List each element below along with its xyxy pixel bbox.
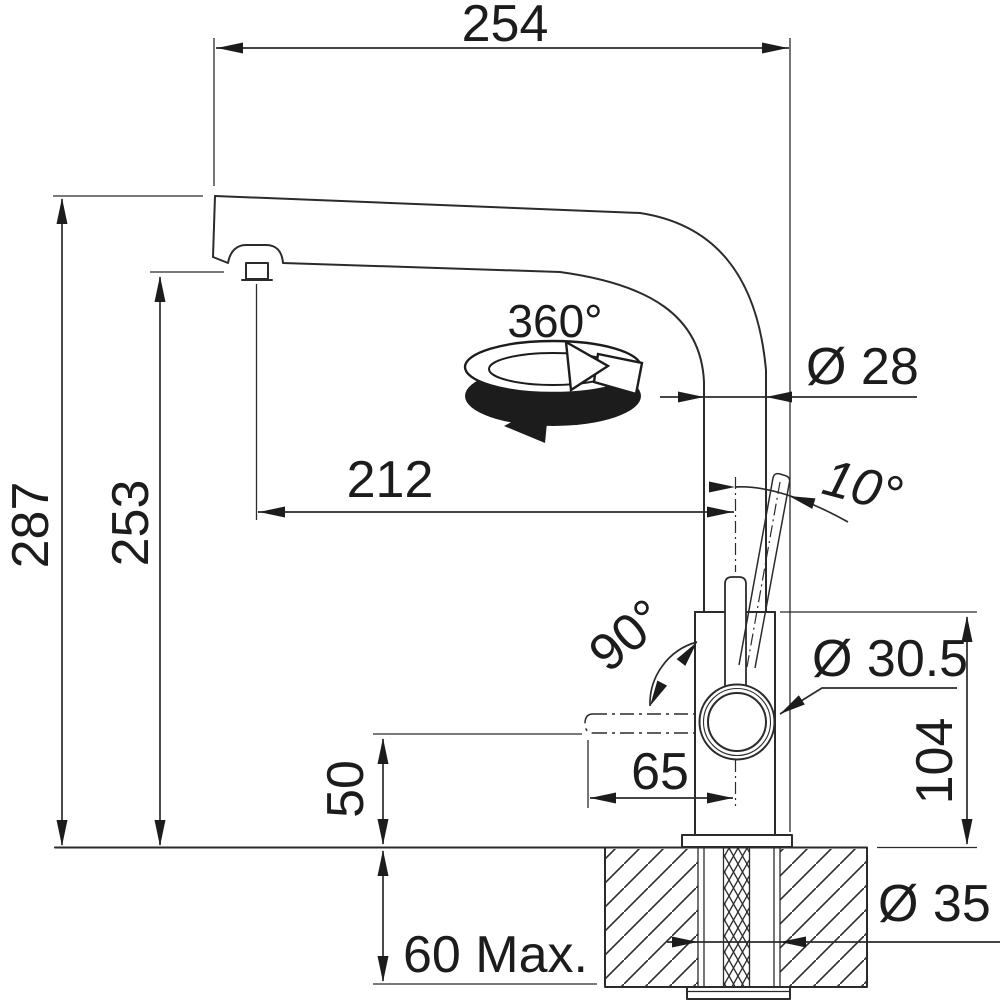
side-outlet-phantom (585, 714, 700, 733)
label-outlet-height: 50 (317, 760, 375, 818)
label-pipe-diameter: Ø 28 (806, 338, 919, 396)
lever-rod (725, 577, 746, 686)
spout-tip-edge (213, 196, 215, 257)
faucet-outline (213, 196, 792, 847)
leader-dia305 (780, 688, 957, 714)
label-overall-width: 254 (462, 0, 549, 53)
aerator-nozzle (246, 263, 268, 279)
rotation-symbol (465, 341, 642, 443)
lever-ring-inner (708, 693, 766, 751)
label-hole-diameter: Ø 35 (878, 875, 991, 933)
label-outlet-offset: 65 (631, 743, 689, 801)
lever-group (700, 474, 790, 806)
label-spout-height: 253 (102, 480, 160, 567)
label-swing-angle: 90° (578, 588, 676, 683)
label-spout-reach: 212 (347, 451, 434, 509)
label-ring-diameter: Ø 30.5 (812, 630, 968, 688)
spout-inner-edge (213, 245, 704, 612)
label-counter-thickness: 60 Max. (403, 926, 588, 984)
label-overall-height: 287 (2, 482, 60, 569)
label-body-height: 104 (906, 718, 964, 805)
dimension-labels: 254 287 253 212 360° Ø 28 10° 90° Ø 30.5… (2, 0, 991, 984)
counter-hatch-right (780, 849, 867, 986)
fixing-nut (687, 987, 790, 999)
faucet-dimension-drawing: 254 287 253 212 360° Ø 28 10° 90° Ø 30.5… (0, 0, 1000, 1000)
drawing-canvas: 254 287 253 212 360° Ø 28 10° 90° Ø 30.5… (0, 0, 1000, 1000)
threaded-shank (724, 848, 750, 987)
outlet-end-cap (585, 714, 593, 733)
label-rotation: 360° (507, 295, 602, 347)
counter-hatch-left (605, 849, 698, 986)
base-flange (682, 835, 792, 847)
